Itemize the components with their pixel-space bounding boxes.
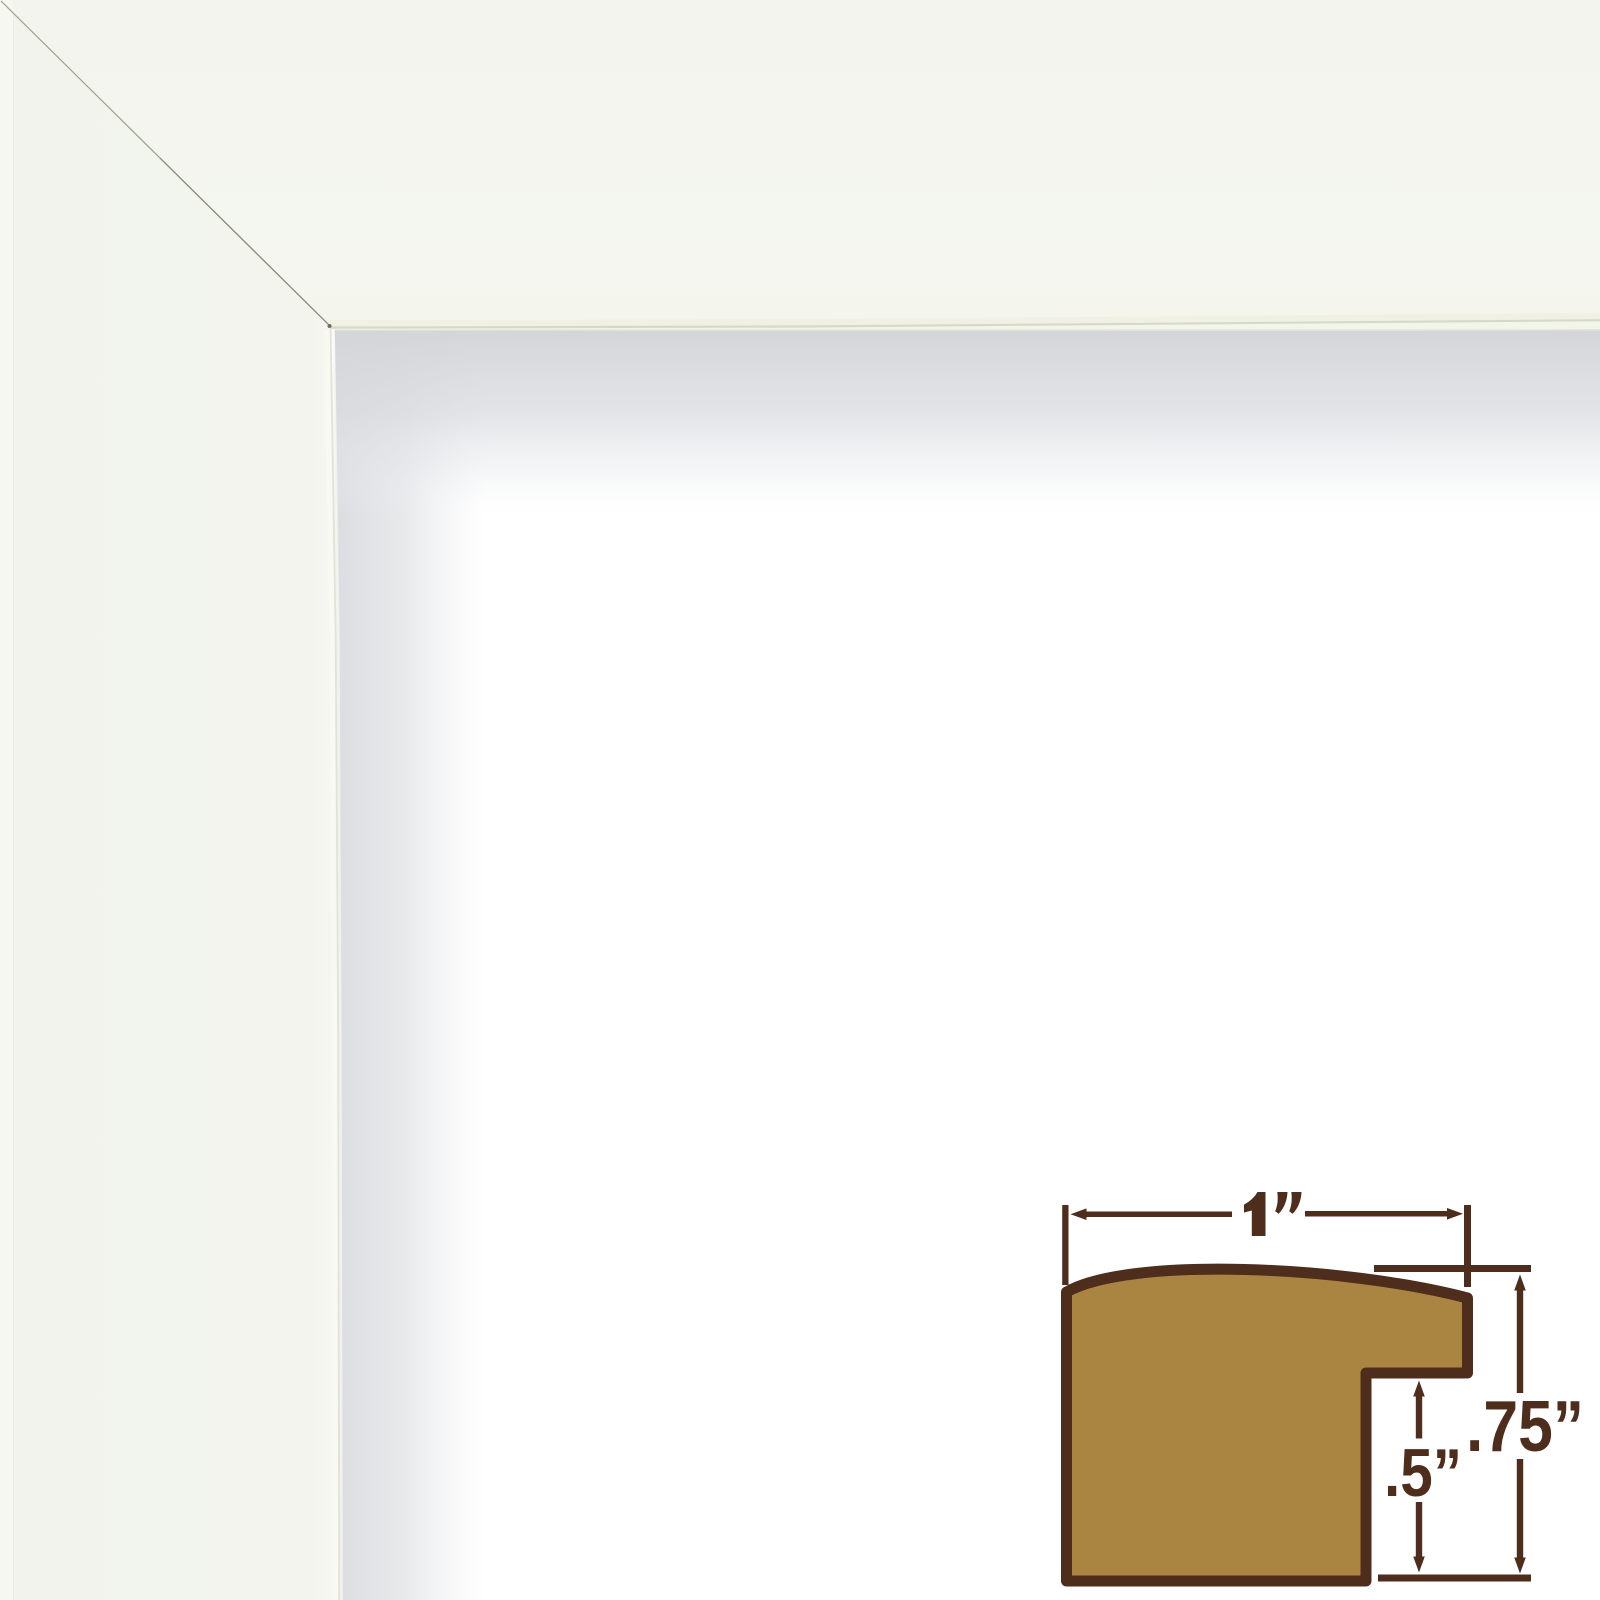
svg-text:.75”: .75”: [1466, 1387, 1584, 1467]
svg-text:.5”: .5”: [1384, 1435, 1462, 1511]
